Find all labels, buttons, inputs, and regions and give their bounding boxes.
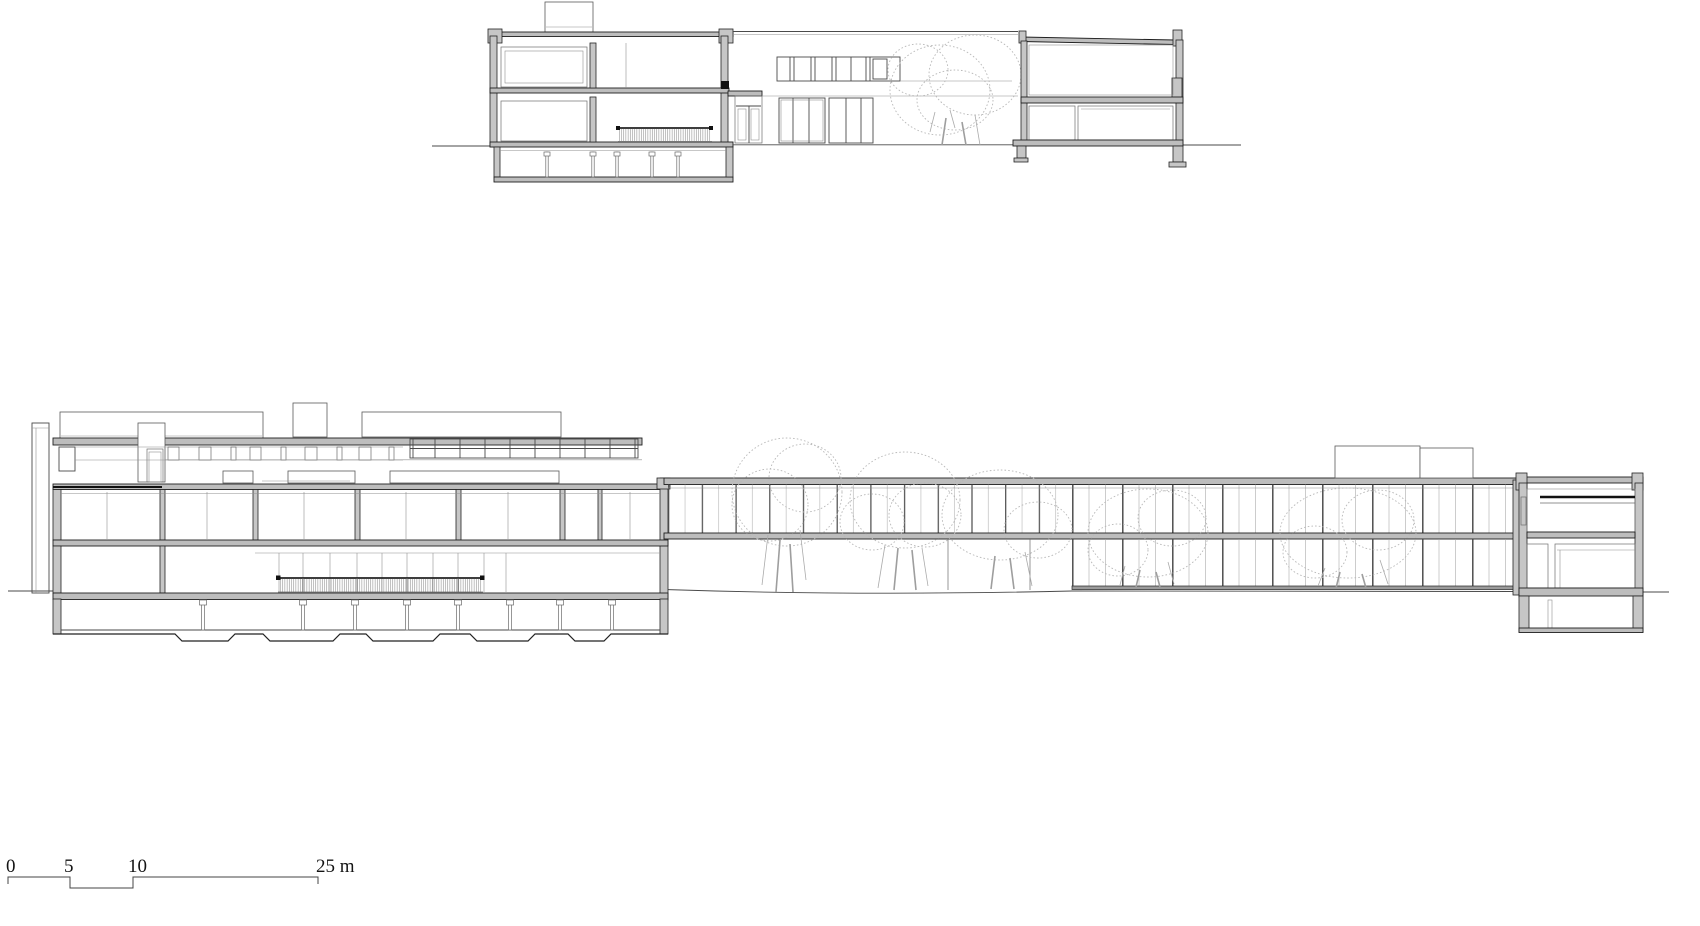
roof-slab [1021,37,1175,45]
lower-building-section [8,403,1669,641]
floor-slab [1021,97,1183,103]
roof-monitor [362,412,561,437]
facade-windows [779,98,873,143]
foundation-footing [53,634,668,641]
partition-wall [590,97,596,142]
section-drawings-svg: 0 5 10 25 m [0,0,1700,926]
foundation-piers [1014,146,1186,167]
floor-slab [1527,532,1635,538]
ground-slab [1519,588,1643,596]
section-marker [721,81,729,89]
roof-penthouse [1420,448,1473,478]
floor-slab [490,88,729,93]
ground-slab [490,142,733,147]
tree [888,35,1021,145]
gallery-railing [276,576,485,593]
roof-penthouse [1335,446,1420,478]
upper-glazing [1072,485,1515,534]
left-section-block [488,2,733,182]
roof-slab [1519,477,1643,483]
upper-building-section [432,2,1241,182]
basement [1519,596,1643,633]
base-sill [1072,586,1515,590]
gallery-level [53,546,660,593]
glazed-link-and-wing-elevation [664,446,1522,595]
basement [53,599,668,641]
right-section-block [1516,473,1643,633]
entrance-door [728,91,762,143]
balcony-railing [616,126,713,142]
roof-penthouse [545,2,593,32]
architectural-drawing-sheet: 0 5 10 25 m [0,0,1700,926]
ground-slab [1013,140,1183,146]
right-section-wing [1013,30,1186,167]
ground-slab [53,593,668,600]
foundation-slab [1519,628,1643,633]
stair-bulkhead [138,423,165,482]
scale-bar: 0 5 10 25 m [6,856,355,888]
chimney [32,423,49,593]
roof-tower [293,403,327,437]
roof-slab [490,32,733,37]
floor-slab [53,540,668,546]
scale-tick-label: 10 [128,856,147,877]
main-building-cut [53,403,670,641]
clerestory-windows [777,57,1012,81]
basement [494,147,733,182]
scale-tick-label: 0 [6,856,16,877]
middle-facade-elevation [733,32,1021,145]
link-glazing [668,485,1072,534]
scale-tick-label: 5 [64,856,74,877]
scale-tick-label: 25 m [316,856,355,877]
roof-band [664,478,1520,485]
cut-wall [1021,41,1027,145]
scale-bar-line [8,877,318,888]
partition-wall [590,43,596,88]
